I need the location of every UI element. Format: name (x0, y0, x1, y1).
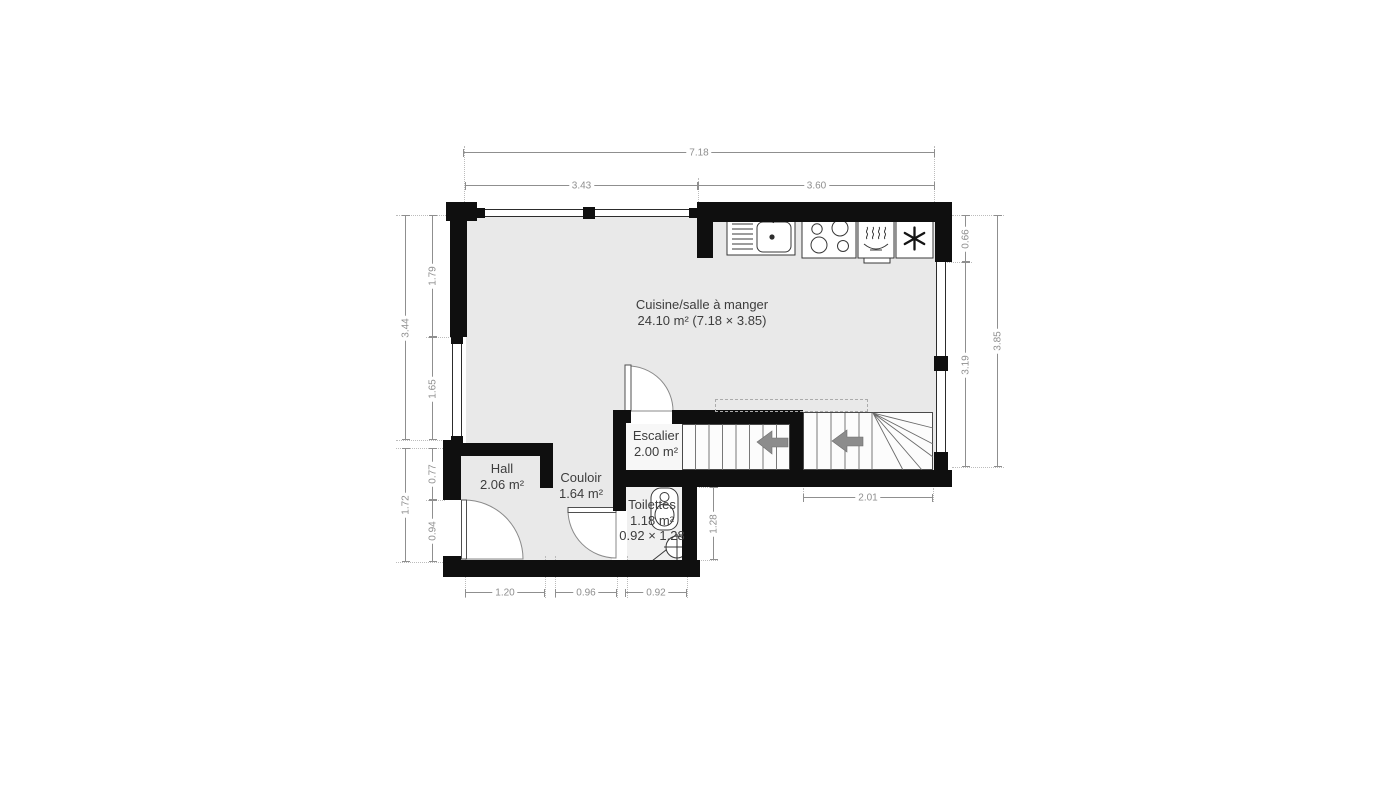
wall (450, 202, 467, 337)
wall (697, 202, 713, 258)
room-area: 1.64 m² (559, 486, 603, 502)
extension-line (933, 488, 934, 502)
couloir-floor (548, 440, 618, 562)
window-cap (477, 208, 485, 218)
room-area: 2.00 m² (633, 444, 679, 460)
floor-plan-canvas: 7.18 3.43 3.60 1.20 0.96 0.92 2.01 3.44 … (0, 0, 1400, 800)
dimension-left-upper: 1.79 (432, 215, 433, 337)
dimension-hall-width: 1.20 (465, 592, 545, 593)
dimension-toilettes-width: 0.92 (625, 592, 687, 593)
window-cap (451, 337, 463, 344)
dimension-total-width: 7.18 (463, 152, 935, 153)
room-name: Escalier (633, 428, 679, 444)
dimension-kitchen-right: 3.60 (698, 185, 935, 186)
extension-line (952, 467, 1004, 468)
dimension-hall-upper: 0.77 (432, 448, 433, 500)
room-name: Hall (480, 461, 524, 477)
wall (443, 560, 700, 577)
stair-flight-upper (803, 412, 933, 470)
window-cap (689, 208, 697, 218)
dimension-right-total: 3.85 (997, 215, 998, 467)
hall-label: Hall 2.06 m² (480, 461, 524, 492)
escalier-label: Escalier 2.00 m² (633, 428, 679, 459)
wall (935, 202, 952, 262)
dimension-hall-door: 0.94 (432, 500, 433, 562)
extension-line (699, 560, 718, 561)
dimension-kitchen-left: 3.43 (465, 185, 698, 186)
room-area: 2.06 m² (480, 477, 524, 493)
window-cap (934, 452, 948, 470)
dimension-right-top: 0.66 (965, 215, 966, 262)
room-name: Toilettes (619, 497, 684, 513)
dimension-toilettes-depth: 1.28 (713, 487, 714, 560)
dimension-right-window: 3.19 (965, 262, 966, 467)
stair-headroom-dashed-outline (715, 399, 868, 412)
room-name: Cuisine/salle à manger (636, 297, 768, 313)
room-area: 1.18 m² (619, 513, 684, 529)
kitchen-label: Cuisine/salle à manger 24.10 m² (7.18 × … (636, 297, 768, 328)
dimension-couloir-width: 0.96 (555, 592, 617, 593)
wall (443, 440, 461, 500)
extension-line (396, 562, 443, 563)
window-cap (451, 436, 463, 443)
wall (697, 202, 952, 222)
dimension-left-total: 3.44 (405, 215, 406, 440)
dimension-hall-total: 1.72 (405, 448, 406, 562)
room-size: 0.92 × 1.28 (619, 528, 684, 544)
room-name: Couloir (559, 470, 603, 486)
dimension-stairs-width: 2.01 (803, 497, 933, 498)
extension-line (464, 146, 465, 204)
dimension-left-lower: 1.65 (432, 337, 433, 440)
wall (613, 470, 952, 487)
window (452, 337, 462, 443)
window-mullion (583, 207, 595, 219)
wall (790, 410, 803, 470)
wall (540, 456, 553, 488)
wall (613, 410, 631, 423)
stair-flight-lower (682, 424, 790, 470)
toilettes-label: Toilettes 1.18 m² 0.92 × 1.28 (619, 497, 684, 544)
window-mullion (934, 356, 948, 371)
couloir-label: Couloir 1.64 m² (559, 470, 603, 501)
room-area: 24.10 m² (7.18 × 3.85) (636, 313, 768, 329)
wall (672, 410, 803, 424)
